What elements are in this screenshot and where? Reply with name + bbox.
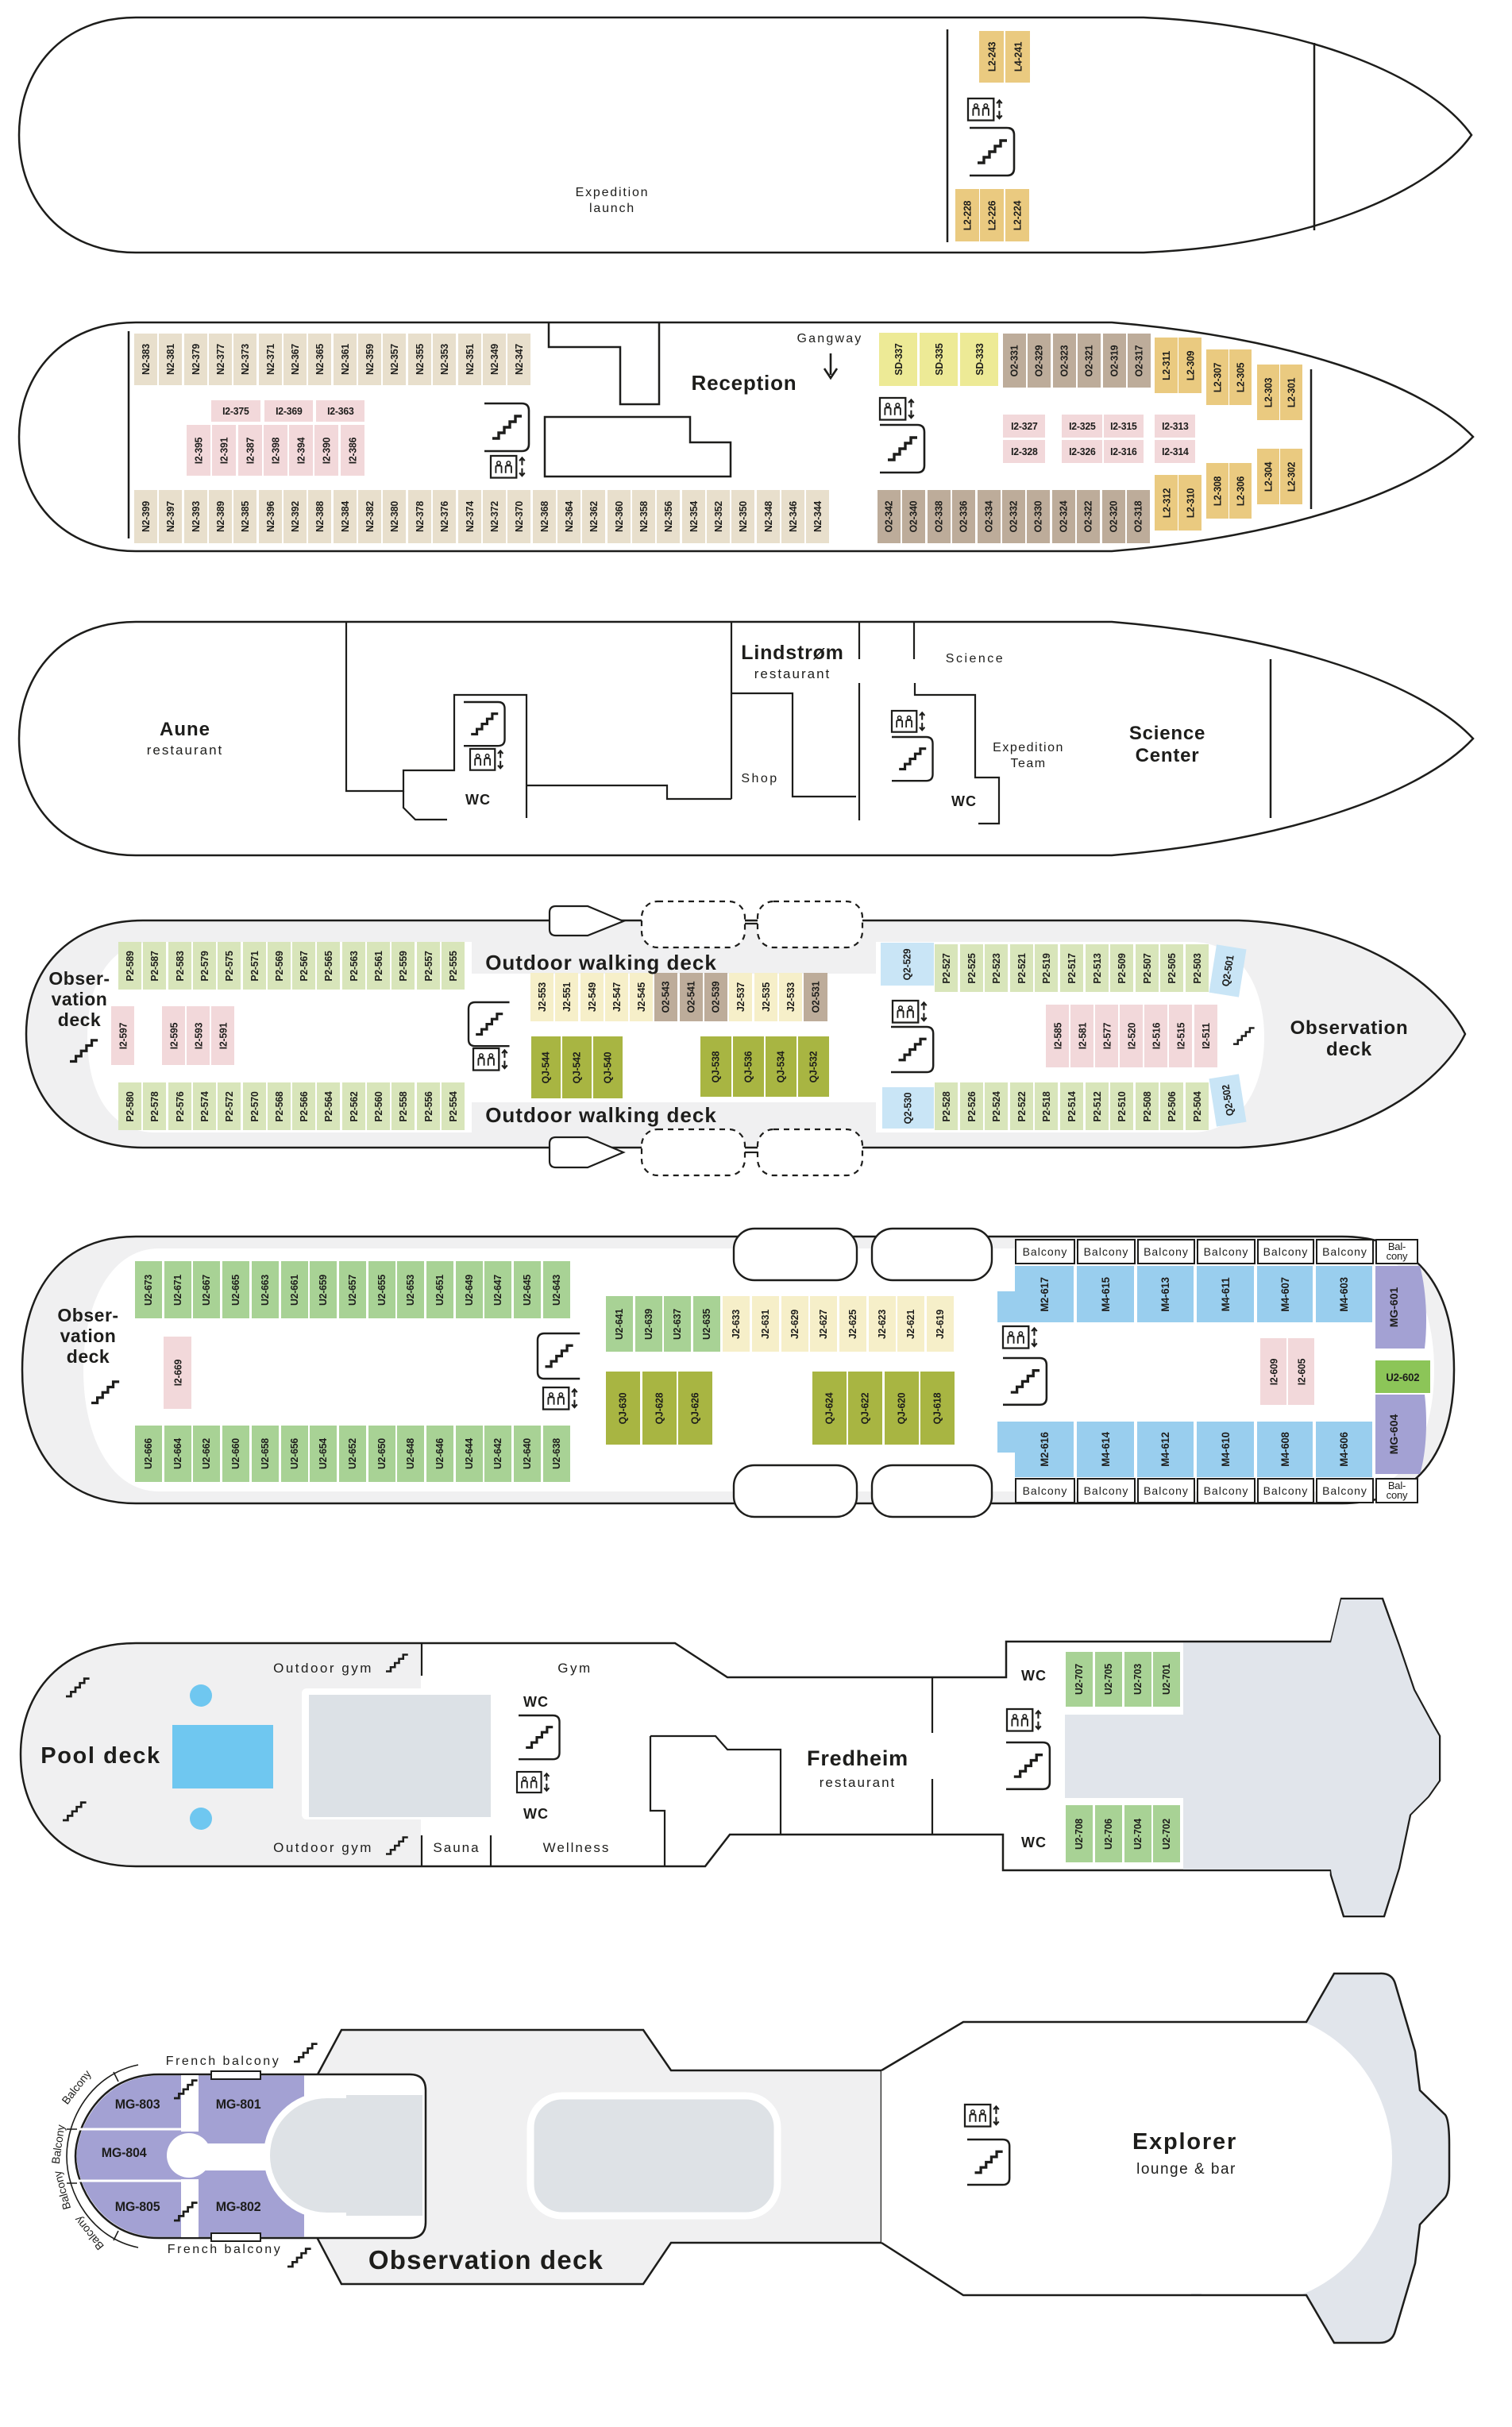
svg-text:MG-601: MG-601 <box>1387 1287 1400 1328</box>
svg-text:MG-604: MG-604 <box>1387 1414 1400 1455</box>
